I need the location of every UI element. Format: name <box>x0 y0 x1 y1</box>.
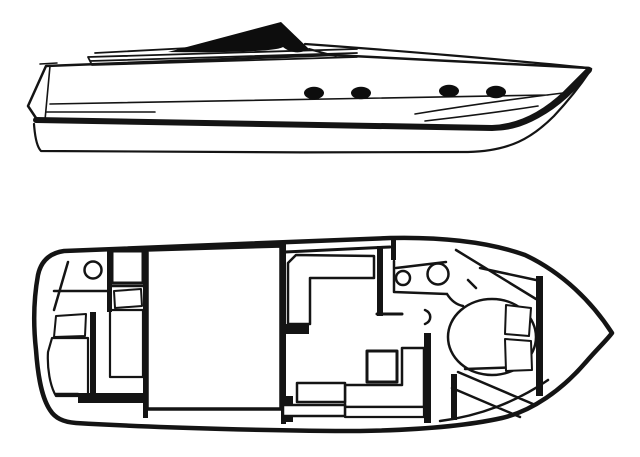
cockpit-hatch <box>147 246 281 409</box>
starboard-berth-pillow <box>114 289 142 308</box>
berth-divider-wall <box>90 312 96 397</box>
yacht-line-drawing <box>0 0 640 457</box>
companionway-step-upper <box>297 383 345 402</box>
galley-sink-large <box>428 264 449 285</box>
toilet-bowl <box>85 262 102 279</box>
aft-locker <box>112 251 143 283</box>
porthole <box>486 86 506 98</box>
side-profile-view <box>28 22 591 152</box>
galley-partition-wall <box>377 246 383 316</box>
v-berth-pillow-upper <box>505 305 531 336</box>
dinette-table <box>367 351 397 382</box>
settee-end-cap <box>283 324 309 334</box>
bed-foot-wall <box>451 374 457 420</box>
galley-sink-small <box>396 271 410 285</box>
hull-accent-lines <box>40 63 563 121</box>
porthole <box>304 87 324 99</box>
windshield <box>168 22 309 52</box>
port-berth-pillow <box>54 314 86 337</box>
companionway-step-lower <box>283 405 345 416</box>
lower-bench-base <box>345 407 424 417</box>
v-berth-pillow-lower <box>505 339 532 371</box>
deck-plan-view <box>34 238 612 431</box>
galley-top-wall <box>391 238 396 260</box>
porthole <box>439 85 459 97</box>
porthole <box>351 87 371 99</box>
yacht-drawing-page <box>0 0 640 457</box>
